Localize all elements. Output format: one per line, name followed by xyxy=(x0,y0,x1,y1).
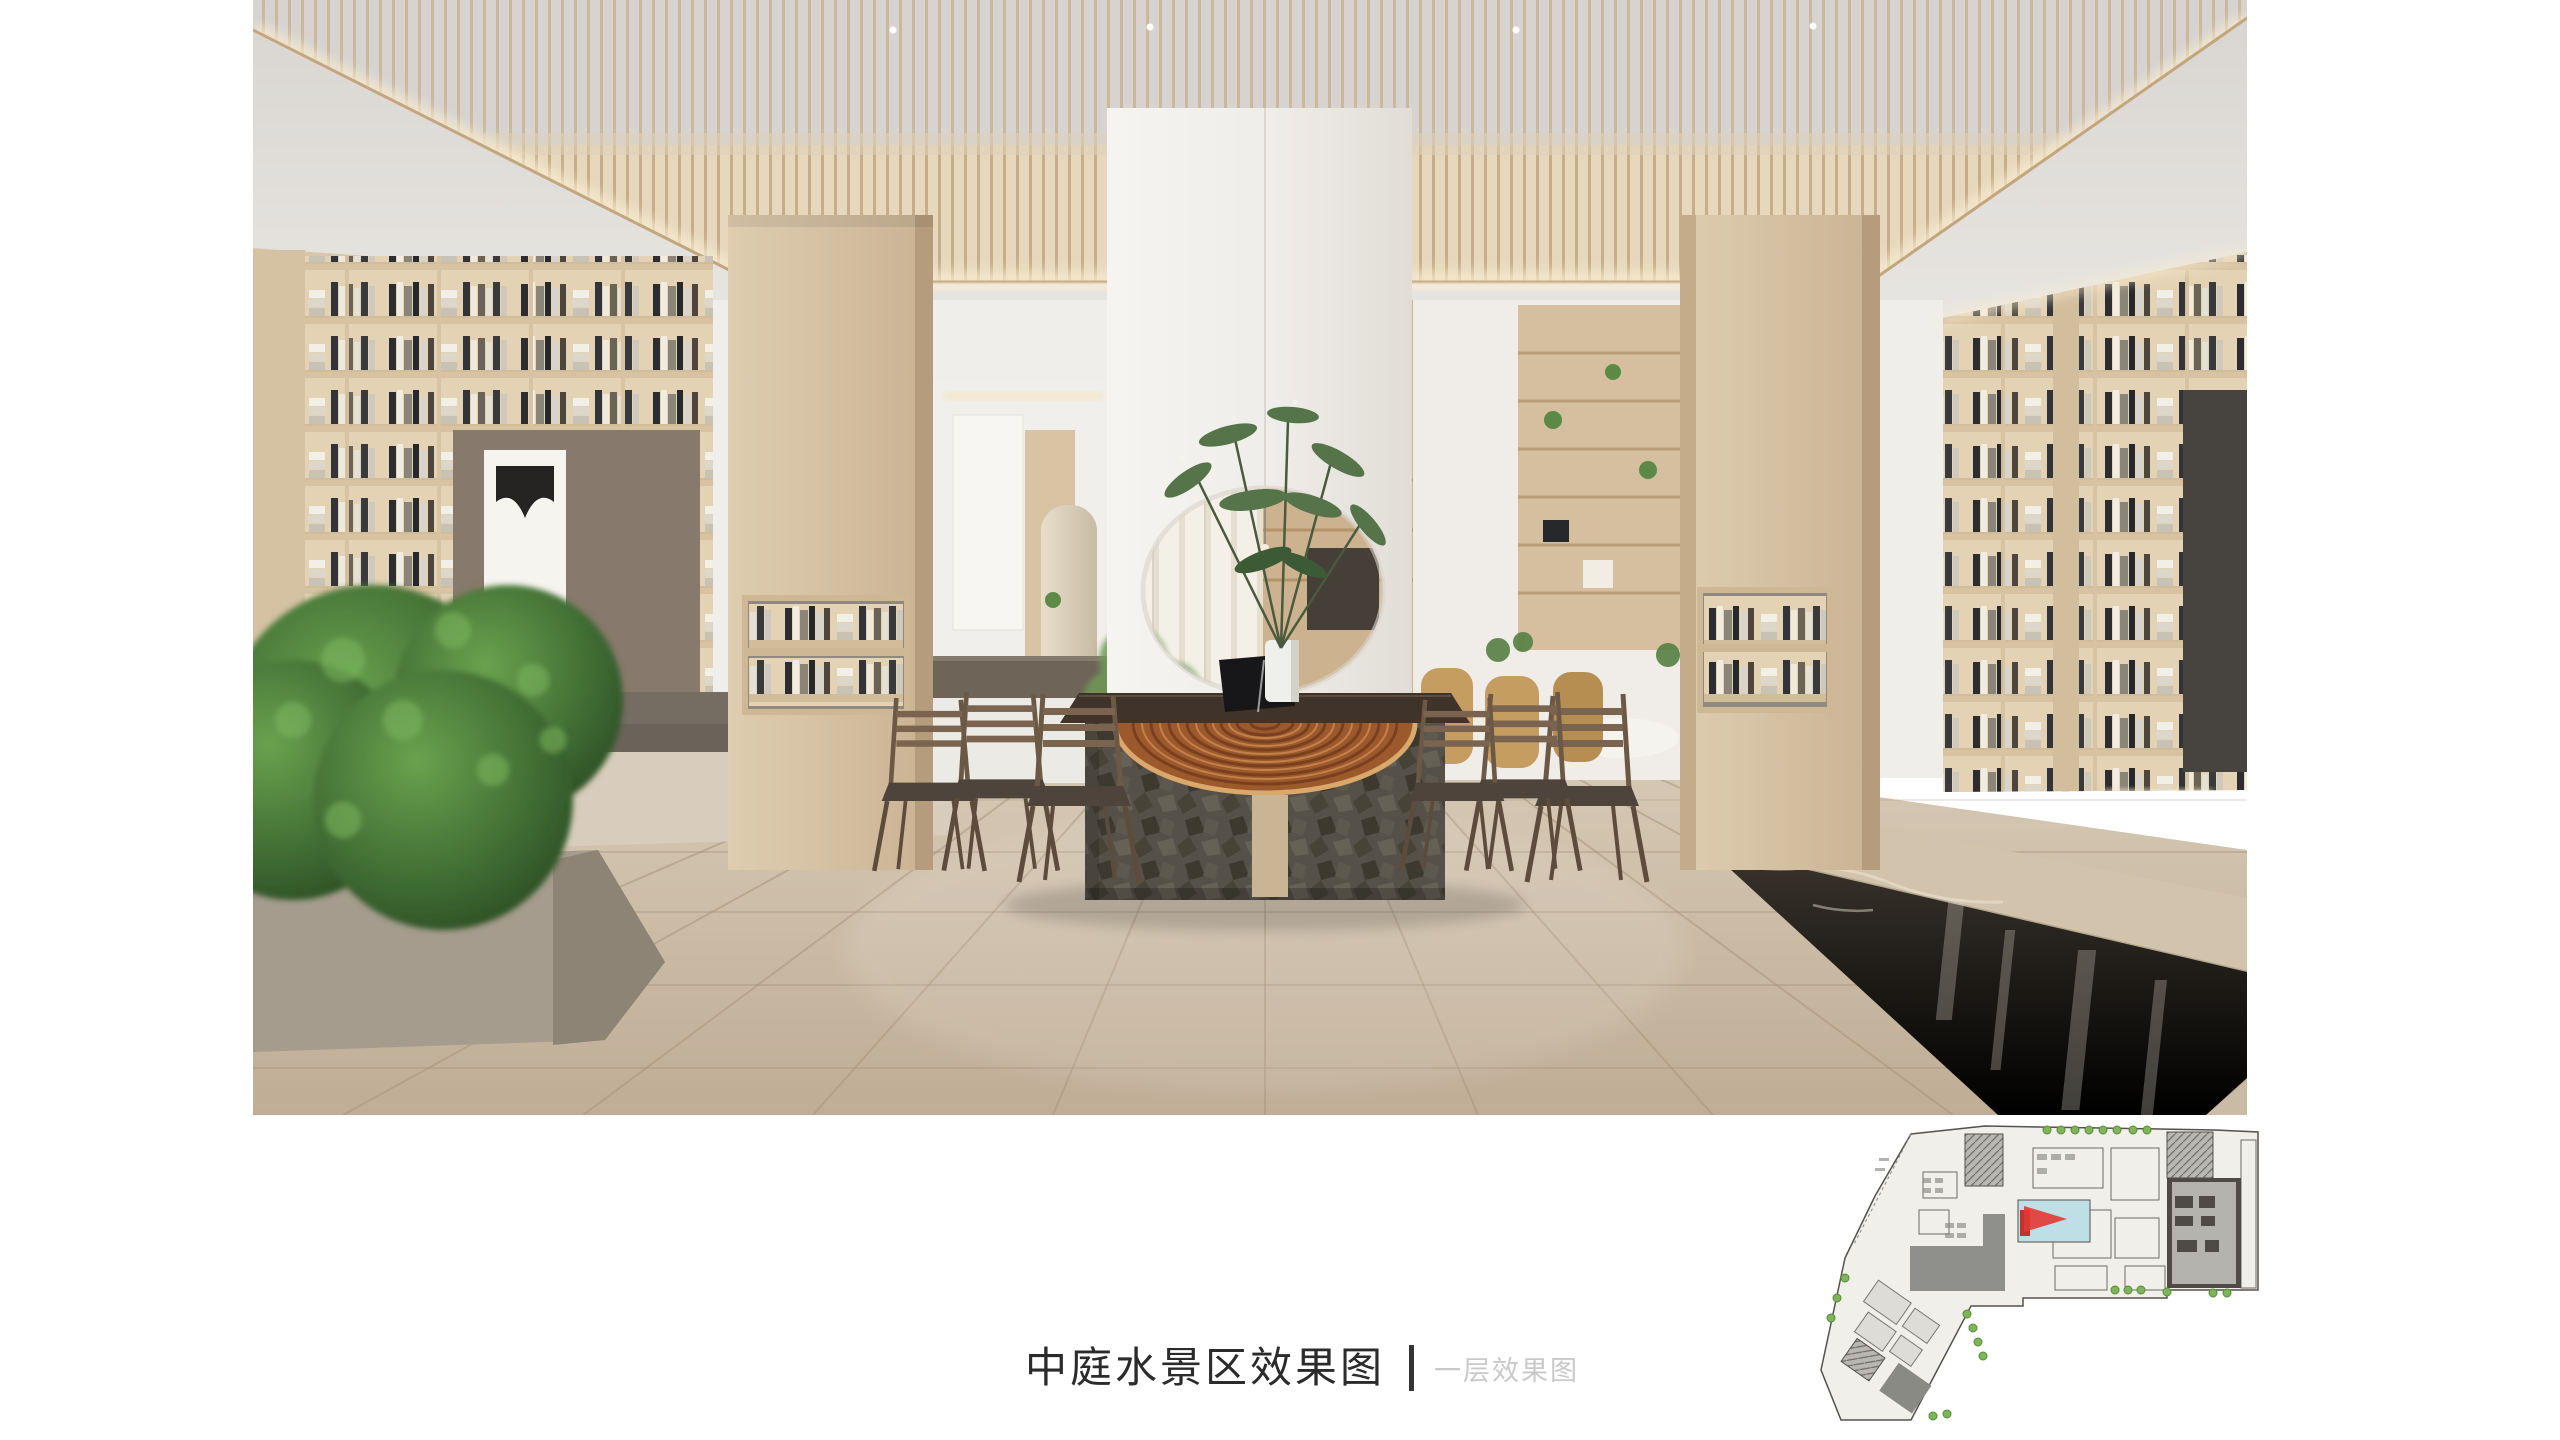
column-shelf-niche xyxy=(745,598,907,712)
wood-column-right xyxy=(1680,215,1880,870)
caption-title: 中庭水景区效果图 xyxy=(1025,1343,1385,1393)
bookshelf-wall-right xyxy=(1943,252,2247,810)
reading-nook xyxy=(2183,390,2247,772)
caption-subtitle: 一层效果图 xyxy=(1434,1349,1579,1388)
hatched-core-b xyxy=(2167,1132,2213,1178)
hatched-core-a xyxy=(1965,1134,2003,1186)
caption-divider xyxy=(1409,1345,1414,1391)
base-gap xyxy=(1252,795,1288,897)
wood-column-left xyxy=(728,215,933,870)
display-shelf xyxy=(1518,305,1680,650)
atrium-rendering xyxy=(253,0,2247,1115)
washroom-block xyxy=(2167,1178,2241,1288)
counter xyxy=(933,660,1107,698)
slide-caption: 中庭水景区效果图 一层效果图 xyxy=(22,1343,2560,1393)
column-shelf-niche xyxy=(1700,590,1830,710)
rendering-canvas xyxy=(253,0,2247,1115)
